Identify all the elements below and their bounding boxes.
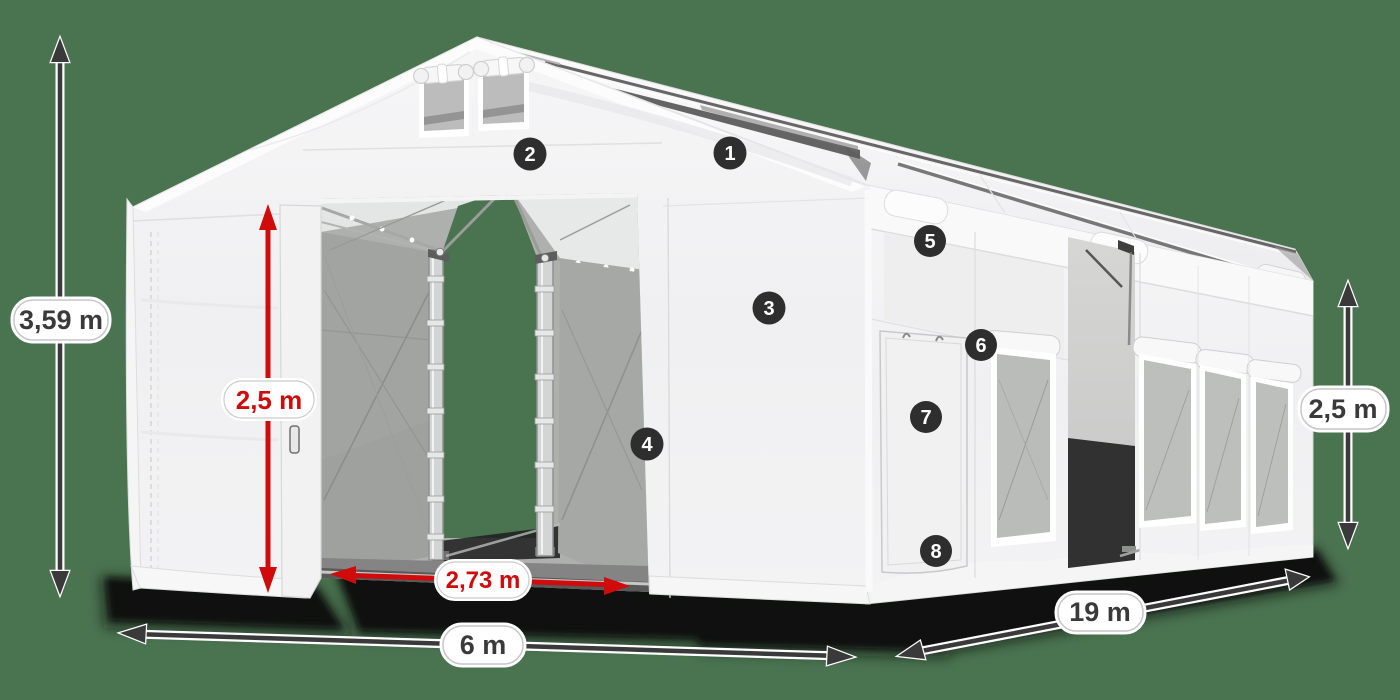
svg-text:2,73 m: 2,73 m (446, 567, 521, 594)
svg-text:19 m: 19 m (1069, 597, 1131, 627)
svg-text:4: 4 (641, 434, 653, 456)
svg-text:6: 6 (975, 335, 986, 357)
svg-text:8: 8 (930, 541, 941, 563)
svg-text:2,5 m: 2,5 m (1308, 394, 1377, 424)
svg-text:6 m: 6 m (460, 630, 507, 660)
svg-text:2: 2 (524, 144, 535, 166)
svg-text:2,5 m: 2,5 m (236, 385, 303, 415)
svg-text:1: 1 (724, 143, 735, 165)
svg-text:7: 7 (920, 407, 931, 429)
svg-text:3,59 m: 3,59 m (19, 305, 103, 335)
svg-text:5: 5 (924, 231, 935, 253)
svg-text:3: 3 (763, 298, 774, 320)
